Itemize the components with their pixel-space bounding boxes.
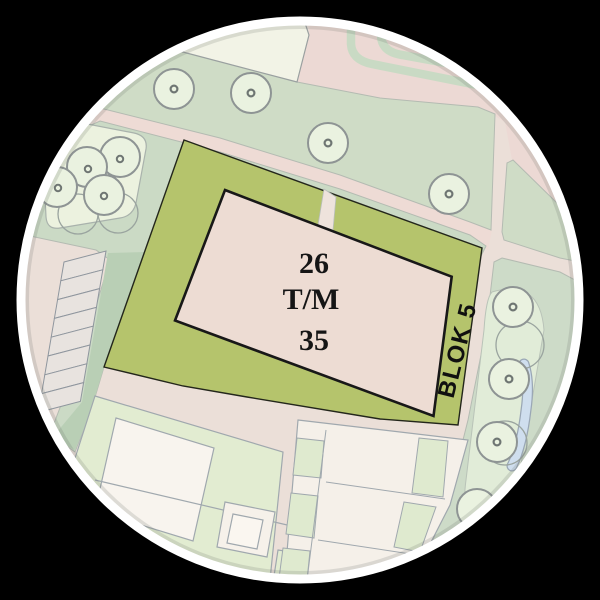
svg-text:26: 26	[299, 247, 329, 280]
svg-text:35: 35	[299, 324, 329, 357]
svg-text:T/M: T/M	[283, 283, 340, 316]
